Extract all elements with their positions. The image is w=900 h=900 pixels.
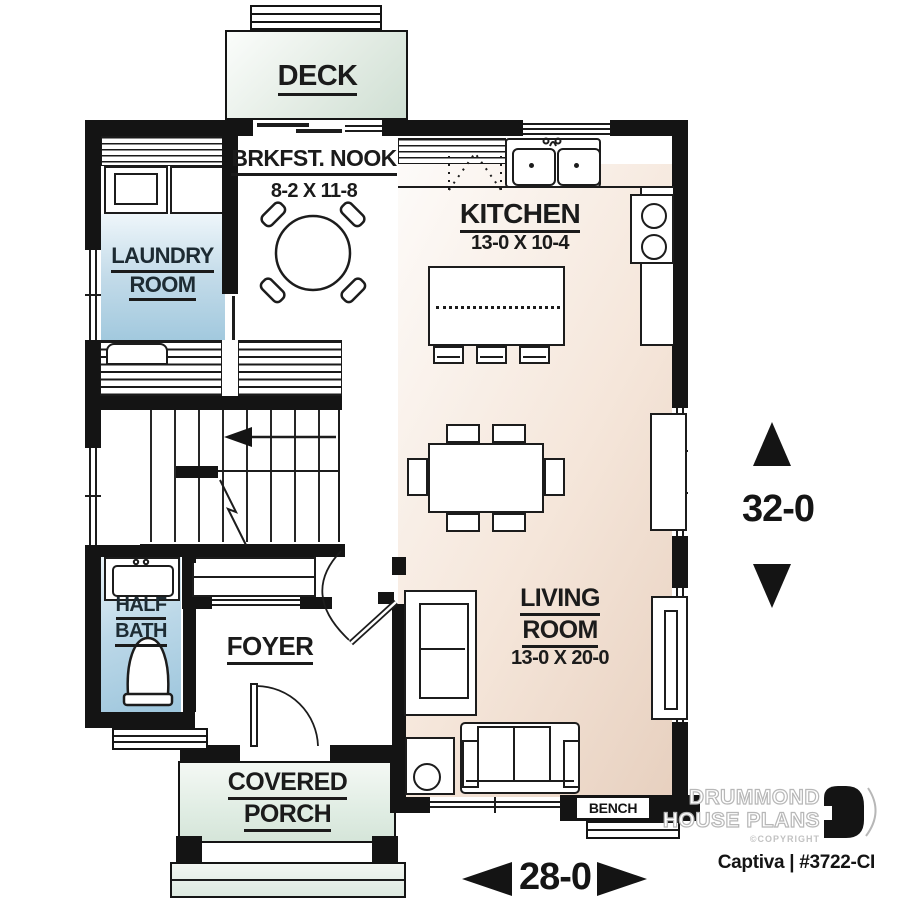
front-door [251,684,318,746]
stair-rail [176,466,218,478]
porch-post [176,836,202,862]
wall-bottom-living-left [397,797,430,813]
loveseat [460,722,580,794]
drummond-logo-icon [818,786,876,838]
foyer-label: FOYER [227,632,314,665]
plan-id: Captiva | #3722-CI [660,852,875,874]
wall-stair-top [85,396,342,410]
laundry-label-2: ROOM [129,273,195,302]
counter-edge-right-bottom [640,344,673,346]
dim-arrow-up [753,422,791,466]
laundry-shelves [101,136,225,166]
window-line [523,123,610,125]
dining-chair [544,458,565,496]
island-overhang-line [436,306,560,309]
bench-label-box: BENCH [577,798,649,818]
wall-foyer-living-top [392,557,406,575]
burner [641,234,667,260]
wall-left-1 [85,130,101,250]
kitchen-size: 13-0 X 10-4 [440,232,600,254]
window-mullion [85,294,101,296]
foyer-label-wrap: FOYER [205,632,335,665]
console-inset [664,610,678,710]
dining-chair [446,424,480,443]
stair-edge [338,410,340,542]
window-line [345,130,382,132]
brand-copyright: ©COPYRIGHT [640,834,820,844]
dining-chair [492,424,526,443]
porch-post [372,836,398,862]
dryer-icon [170,166,225,214]
window-line [523,133,610,135]
dim-width: 28-0 [513,856,597,899]
wall-top-mid [382,120,523,136]
dim-arrow-right [597,862,647,896]
dining-table [428,443,544,513]
wall-top-left [85,120,253,136]
cushion-line [419,648,465,650]
window-line [523,128,610,130]
step-line [172,879,404,881]
window-line [345,125,382,127]
wall-right-1 [672,130,688,408]
living-label-1: LIVING [520,584,600,616]
washer-tub [114,173,158,205]
stool-line [437,356,460,358]
console-table [651,596,688,720]
deck-door-panel [296,129,342,133]
kitchen-label-wrap: KITCHEN [440,198,600,233]
kitchen-island [428,266,565,346]
living-label-wrap: LIVING ROOM [480,584,640,648]
dining-chair [492,513,526,532]
closet-slider-line [212,604,300,606]
drain-dot [574,163,579,168]
kitchen-counter-top [398,138,506,164]
laundry-label-1: LAUNDRY [111,244,214,273]
sink-basin [557,148,601,186]
wall-closet-bottom-r [300,597,332,609]
threshold-line [114,741,206,743]
nook-label: BRKFST. NOOK [231,146,396,176]
window-mullion [85,495,101,497]
island-stool [433,346,464,364]
stool-line [523,356,546,358]
nook-table-icon [259,201,367,305]
stair-rail-line [218,470,338,472]
dim-arrow-left [462,862,512,896]
nook-window [345,120,382,136]
burner [641,203,667,229]
island-stool [476,346,507,364]
laundry-door [232,296,235,340]
porch-label-2: PORCH [244,800,331,832]
wall-left-2 [85,340,101,448]
dim-arrow-down [753,564,791,608]
wall-right-2 [672,536,688,588]
dining-chair [407,458,428,496]
kitchen-sink-icon [505,138,601,188]
wall-halfbath-right-1 [183,545,196,563]
drain-dot [529,163,534,168]
washer-icon [104,166,168,214]
closet-shelf-line [194,576,314,578]
sofa-base-line [466,780,574,782]
stool-line [480,356,503,358]
side-table [405,737,455,795]
floor-plan-canvas: BENCH [0,0,900,900]
deck-label-wrap: DECK [240,60,395,96]
sofa-cushion [477,726,515,782]
armchair [404,590,477,716]
bench-label: BENCH [589,800,637,816]
foyer-closet [192,557,316,597]
console-table [650,413,687,531]
wall-halfbath-right-2 [183,598,196,712]
halfbath-label-1: HALF [116,594,167,620]
armchair-cushion [419,603,469,699]
brand-line-1: DRUMMOND [640,786,820,810]
stair-window [85,448,101,545]
kitchen-sink-window [523,120,610,136]
deck-door-panel [257,123,309,127]
nook-label-wrap: BRKFST. NOOK [228,146,400,176]
dim-height: 32-0 [728,488,828,531]
deck-steps [250,5,382,30]
window-mullion [494,797,496,813]
halfbath-threshold [112,728,208,750]
wall-halfbath-top [85,545,195,557]
door-hinge-stub [378,592,394,604]
living-label-2: ROOM [522,616,597,648]
brand-line-2: HOUSE PLANS [640,809,820,833]
laundry-label-wrap: LAUNDRY ROOM [100,244,225,301]
island-stool [519,346,550,364]
closet-slider-line [212,599,300,601]
sofa-cushion [513,726,551,782]
porch-label-1: COVERED [228,768,347,800]
halfbath-label-wrap: HALF BATH [103,594,179,647]
kitchen-label: KITCHEN [460,198,580,233]
brand-block: DRUMMOND HOUSE PLANS ©COPYRIGHT [640,786,820,844]
nook-size: 8-2 X 11-8 [228,180,400,202]
porch-steps [170,862,406,898]
bathroom-sink-icon [112,565,174,597]
built-in-bench [106,343,168,365]
living-size: 13-0 X 20-0 [480,647,640,669]
threshold-line [114,735,206,737]
halfbath-label-2: BATH [115,620,167,646]
living-window-bottom [430,797,560,813]
hall-closet-right [238,340,342,396]
deck-label: DECK [278,60,358,96]
wall-halfbath-bottom [85,712,195,728]
laundry-window [85,250,101,340]
porch-label-wrap: COVERED PORCH [195,768,380,832]
stove-icon [630,194,674,264]
wall-bottom-foyer-right [330,745,397,761]
dining-chair [446,513,480,532]
lamp-icon [413,763,441,791]
sink-basin [512,148,556,186]
wall-left-3 [85,545,101,728]
